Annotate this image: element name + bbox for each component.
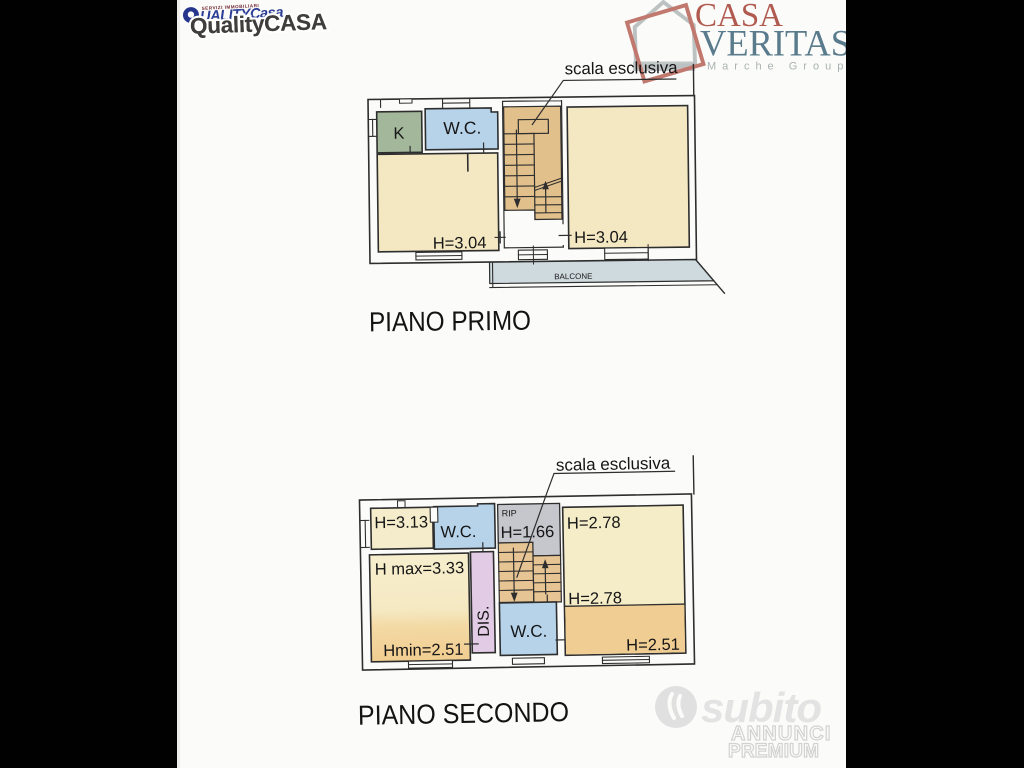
svg-text:PIANO PRIMO: PIANO PRIMO bbox=[369, 305, 531, 338]
svg-text:W.C.: W.C. bbox=[443, 118, 481, 138]
svg-text:VERITAS: VERITAS bbox=[700, 24, 851, 65]
svg-text:PIANO SECONDO: PIANO SECONDO bbox=[358, 696, 570, 731]
svg-text:H=3.13: H=3.13 bbox=[374, 513, 428, 532]
svg-text:H=2.78: H=2.78 bbox=[568, 589, 622, 608]
svg-text:H=2.51: H=2.51 bbox=[626, 636, 680, 655]
svg-text:QualityCASA: QualityCASA bbox=[190, 9, 328, 39]
svg-text:H=2.78: H=2.78 bbox=[567, 514, 621, 533]
svg-text:BALCONE: BALCONE bbox=[554, 272, 592, 281]
svg-text:scala esclusiva: scala esclusiva bbox=[565, 58, 679, 78]
svg-text:DIS.: DIS. bbox=[475, 605, 493, 636]
svg-text:H max=3.33: H max=3.33 bbox=[375, 559, 465, 579]
svg-text:H=3.04: H=3.04 bbox=[574, 228, 628, 247]
svg-text:RIP: RIP bbox=[502, 508, 517, 518]
svg-text:K: K bbox=[393, 125, 404, 143]
svg-text:H=3.04: H=3.04 bbox=[433, 234, 487, 253]
svg-text:PREMIUM: PREMIUM bbox=[728, 741, 819, 762]
svg-text:Hmin=2.51: Hmin=2.51 bbox=[383, 641, 464, 660]
svg-text:Marche Group: Marche Group bbox=[707, 61, 849, 73]
svg-text:W.C.: W.C. bbox=[510, 622, 547, 642]
svg-text:H=1.66: H=1.66 bbox=[500, 523, 554, 542]
svg-text:W.C.: W.C. bbox=[440, 523, 476, 542]
